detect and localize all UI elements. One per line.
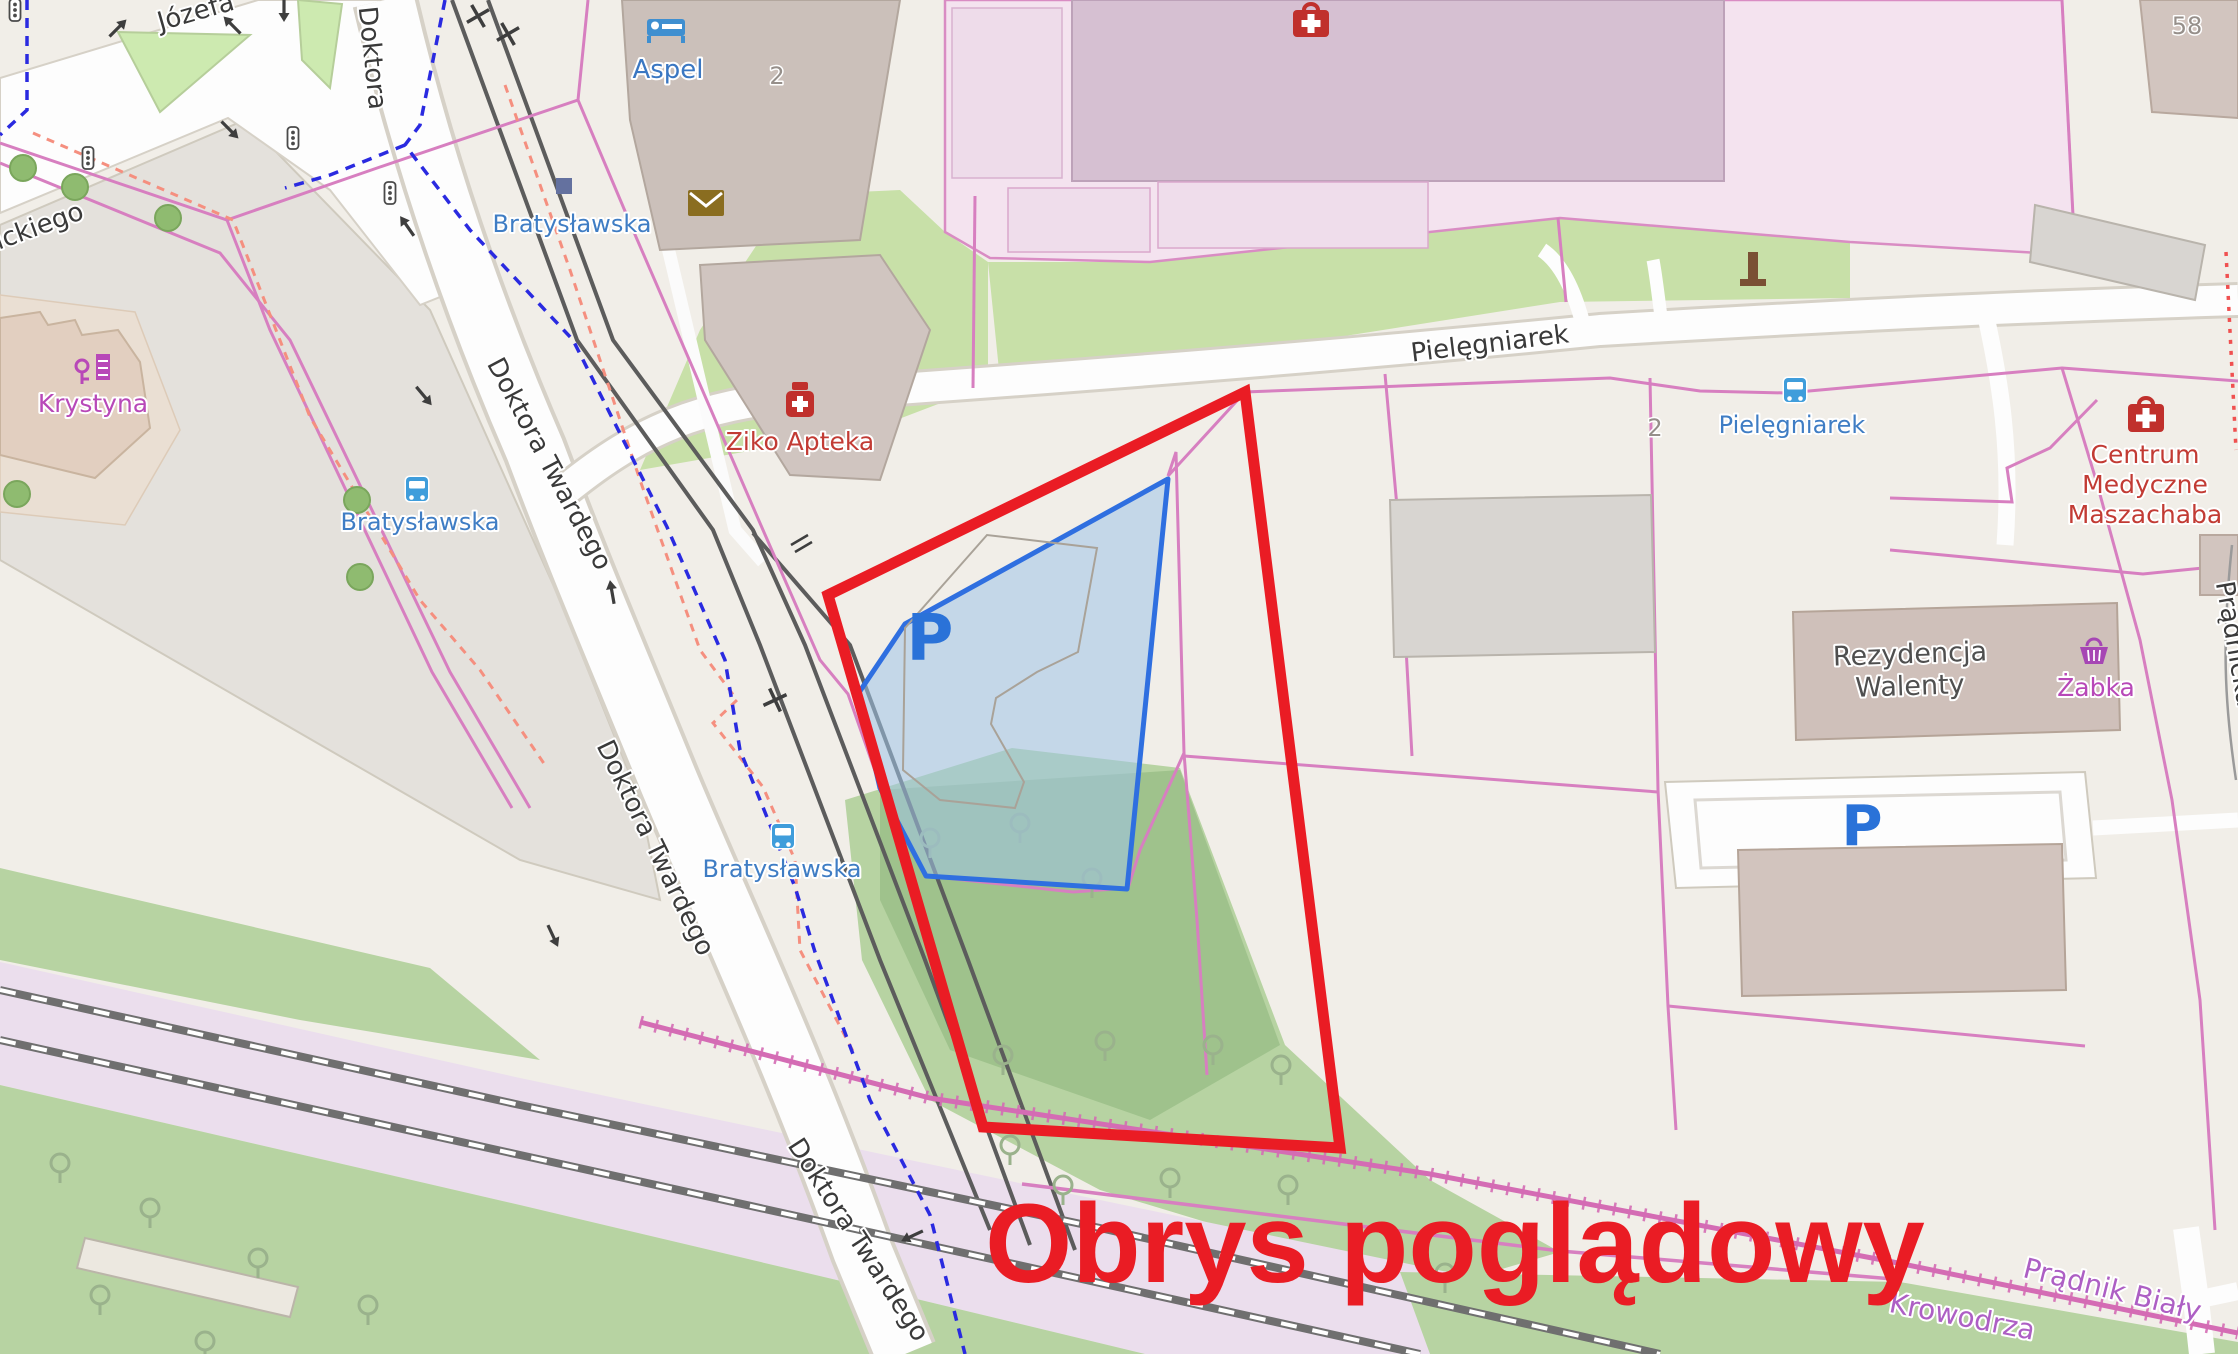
poi-label-centrum-line2: Medyczne <box>2082 470 2208 499</box>
traffic-signal-icon <box>288 127 299 149</box>
parking-symbol: P <box>907 602 954 676</box>
housenumber-2: 2 <box>1647 414 1662 442</box>
poi-label-aspel: Aspel <box>632 55 703 85</box>
stop-label-bratyslawska: Bratysławska <box>341 508 500 536</box>
map-canvas[interactable]: Józefa ickiego Doktora Doktora Twardego … <box>0 0 2238 1354</box>
traffic-signal-icon <box>10 0 21 21</box>
post-office-icon <box>688 190 724 216</box>
stop-label-bratyslawska: Bratysławska <box>703 855 862 883</box>
poi-label-rezydencja-line1: Rezydencja <box>1832 636 1987 672</box>
annotation-obrys: Obrys poglądowy <box>985 1181 1925 1306</box>
stop-label-bratyslawska: Bratysławska <box>493 210 652 238</box>
poi-label-zabka: Żabka <box>2057 673 2135 702</box>
housenumber-2: 2 <box>769 62 784 90</box>
poi-label-krystyna: Krystyna <box>38 389 148 418</box>
traffic-signal-icon <box>83 147 94 169</box>
poi-label-ziko-apteka: Ziko Apteka <box>726 427 874 456</box>
parking-symbol: P <box>1841 794 1882 859</box>
bus-stop-icon <box>1783 377 1808 404</box>
tram-stop-icon <box>556 178 572 194</box>
stop-label-pielegniarek: Pielęgniarek <box>1719 411 1866 439</box>
poi-label-rezydencja-line2: Walenty <box>1855 669 1965 704</box>
poi-label-centrum-line3: Maszachaba <box>2068 500 2222 529</box>
bus-stop-icon <box>771 823 796 850</box>
bus-stop-icon <box>405 476 430 503</box>
poi-label-centrum-line1: Centrum <box>2091 440 2200 469</box>
traffic-signal-icon <box>385 182 396 204</box>
housenumber-58: 58 <box>2172 12 2203 40</box>
